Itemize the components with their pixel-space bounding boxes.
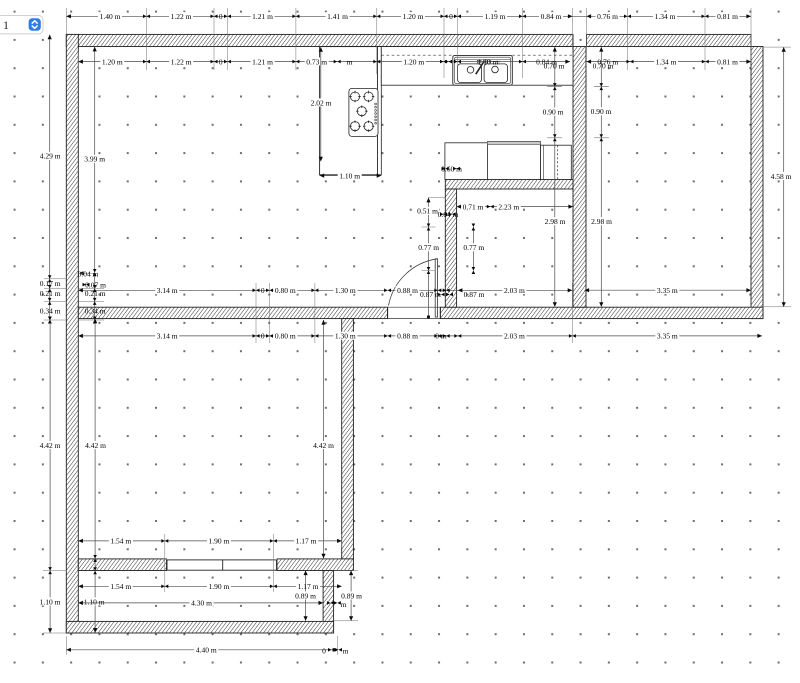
svg-text:0.80 m: 0.80 m: [275, 286, 296, 295]
svg-text:0: 0: [449, 12, 453, 21]
svg-text:1.21 m: 1.21 m: [252, 57, 273, 66]
svg-text:1.17 m: 1.17 m: [298, 582, 319, 591]
svg-text:1.20 m: 1.20 m: [403, 57, 424, 66]
svg-text:0.70 m: 0.70 m: [544, 62, 565, 71]
svg-text:0.88 m: 0.88 m: [397, 286, 418, 295]
svg-text:4.42 m: 4.42 m: [85, 441, 106, 450]
svg-text:0.87 m: 0.87 m: [464, 290, 485, 299]
svg-text:m: m: [341, 600, 347, 609]
svg-text:1.30 m: 1.30 m: [335, 286, 356, 295]
svg-text:2.02 m: 2.02 m: [311, 98, 332, 107]
svg-text:3.35 m: 3.35 m: [657, 286, 678, 295]
svg-text:0: 0: [219, 57, 223, 66]
svg-text:0.90 m: 0.90 m: [591, 107, 612, 116]
svg-text:1.19 m: 1.19 m: [485, 12, 506, 21]
svg-text:1.20 m: 1.20 m: [403, 12, 424, 21]
svg-text:1.10 m: 1.10 m: [339, 171, 360, 180]
svg-text:1.90 m: 1.90 m: [208, 537, 229, 546]
svg-text:0.70 m: 0.70 m: [593, 62, 614, 71]
svg-text:1.90 m: 1.90 m: [208, 582, 229, 591]
svg-text:0.34 m: 0.34 m: [40, 307, 61, 316]
svg-text:0.90 m: 0.90 m: [543, 108, 564, 117]
svg-text:0.04 m: 0.04 m: [78, 269, 99, 278]
svg-text:1.10 m: 1.10 m: [84, 597, 105, 606]
svg-text:0.88 m: 0.88 m: [397, 332, 418, 341]
svg-text:0.81 m: 0.81 m: [717, 57, 738, 66]
svg-text:1.22 m: 1.22 m: [171, 12, 192, 21]
svg-text:4.58 m: 4.58 m: [771, 172, 792, 181]
svg-text:m: m: [347, 57, 353, 66]
svg-text:3.14 m: 3.14 m: [157, 332, 178, 341]
svg-text:1.40 m: 1.40 m: [100, 12, 121, 21]
svg-text:0.04 m: 0.04 m: [438, 210, 459, 219]
svg-text:0.21 m: 0.21 m: [85, 289, 106, 298]
svg-text:2.23 m: 2.23 m: [498, 202, 519, 211]
svg-text:0 m: 0 m: [435, 332, 447, 341]
svg-text:1.10 m: 1.10 m: [478, 57, 499, 66]
svg-text:0.21 m: 0.21 m: [40, 289, 61, 298]
svg-text:4.29 m: 4.29 m: [40, 152, 61, 161]
svg-text:1.41 m: 1.41 m: [327, 12, 348, 21]
svg-text:4.42 m: 4.42 m: [313, 441, 334, 450]
svg-text:1.21 m: 1.21 m: [252, 12, 273, 21]
svg-text:2.03 m: 2.03 m: [504, 332, 525, 341]
svg-text:2.98 m: 2.98 m: [545, 217, 566, 226]
svg-text:1.30 m: 1.30 m: [335, 332, 356, 341]
svg-text:1.54 m: 1.54 m: [110, 537, 131, 546]
svg-text:0.84 m: 0.84 m: [541, 12, 562, 21]
svg-text:1.10 m: 1.10 m: [40, 597, 61, 606]
svg-text:0.87 m: 0.87 m: [420, 290, 441, 299]
svg-text:1.22 m: 1.22 m: [171, 57, 192, 66]
svg-text:3.14 m: 3.14 m: [157, 286, 178, 295]
svg-text:0.73 m: 0.73 m: [306, 57, 327, 66]
svg-text:1.54 m: 1.54 m: [110, 582, 131, 591]
svg-text:2.03 m: 2.03 m: [504, 286, 525, 295]
svg-text:1.17 m: 1.17 m: [296, 537, 317, 546]
svg-text:0.51 m: 0.51 m: [417, 207, 438, 216]
svg-text:0: 0: [261, 332, 265, 341]
svg-text:3.99 m: 3.99 m: [84, 155, 105, 164]
svg-text:1: 1: [3, 18, 9, 32]
svg-text:1.34 m: 1.34 m: [656, 57, 677, 66]
svg-text:0.71 m: 0.71 m: [463, 202, 484, 211]
svg-text:0: 0: [322, 646, 326, 655]
svg-text:m: m: [343, 646, 349, 655]
svg-text:0.17 m: 0.17 m: [40, 279, 61, 288]
svg-text:0.76 m: 0.76 m: [597, 12, 618, 21]
svg-text:0.34 m: 0.34 m: [85, 307, 106, 316]
svg-text:0.89 m: 0.89 m: [341, 591, 362, 600]
svg-text:0: 0: [219, 12, 223, 21]
svg-text:3.35 m: 3.35 m: [657, 332, 678, 341]
svg-text:0.80 m: 0.80 m: [275, 332, 296, 341]
svg-text:4.40 m: 4.40 m: [196, 646, 217, 655]
svg-text:2.98 m: 2.98 m: [591, 217, 612, 226]
svg-text:0.77 m: 0.77 m: [463, 243, 484, 252]
svg-text:0.77 m: 0.77 m: [418, 243, 439, 252]
svg-text:1.20 m: 1.20 m: [102, 57, 123, 66]
svg-text:4.42 m: 4.42 m: [40, 441, 61, 450]
svg-text:1.34 m: 1.34 m: [655, 12, 676, 21]
svg-text:0: 0: [261, 286, 265, 295]
svg-text:4.30 m: 4.30 m: [191, 599, 212, 608]
svg-text:0.81 m: 0.81 m: [717, 12, 738, 21]
svg-text:0.60 m: 0.60 m: [441, 164, 462, 173]
svg-text:0.89 m: 0.89 m: [295, 591, 316, 600]
